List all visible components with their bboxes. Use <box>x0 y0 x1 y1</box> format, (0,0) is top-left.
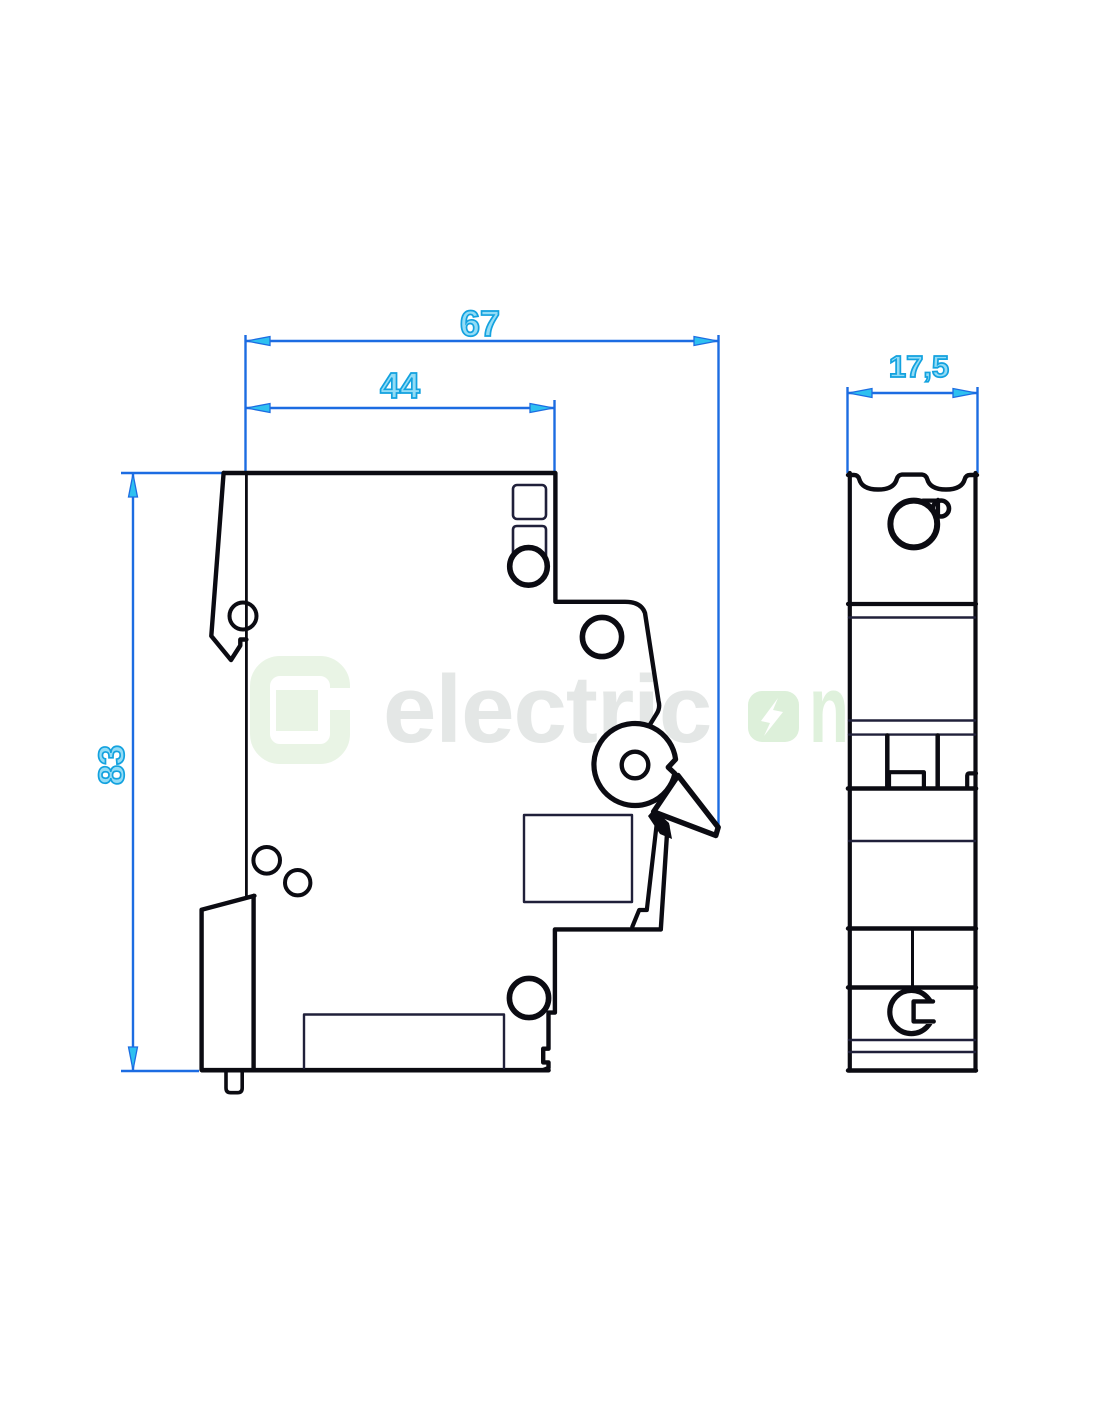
svg-text:83: 83 <box>91 745 132 785</box>
svg-text:67: 67 <box>460 303 500 344</box>
svg-text:n: n <box>809 657 849 763</box>
svg-text:17,5: 17,5 <box>889 349 949 384</box>
svg-text:44: 44 <box>380 365 420 406</box>
